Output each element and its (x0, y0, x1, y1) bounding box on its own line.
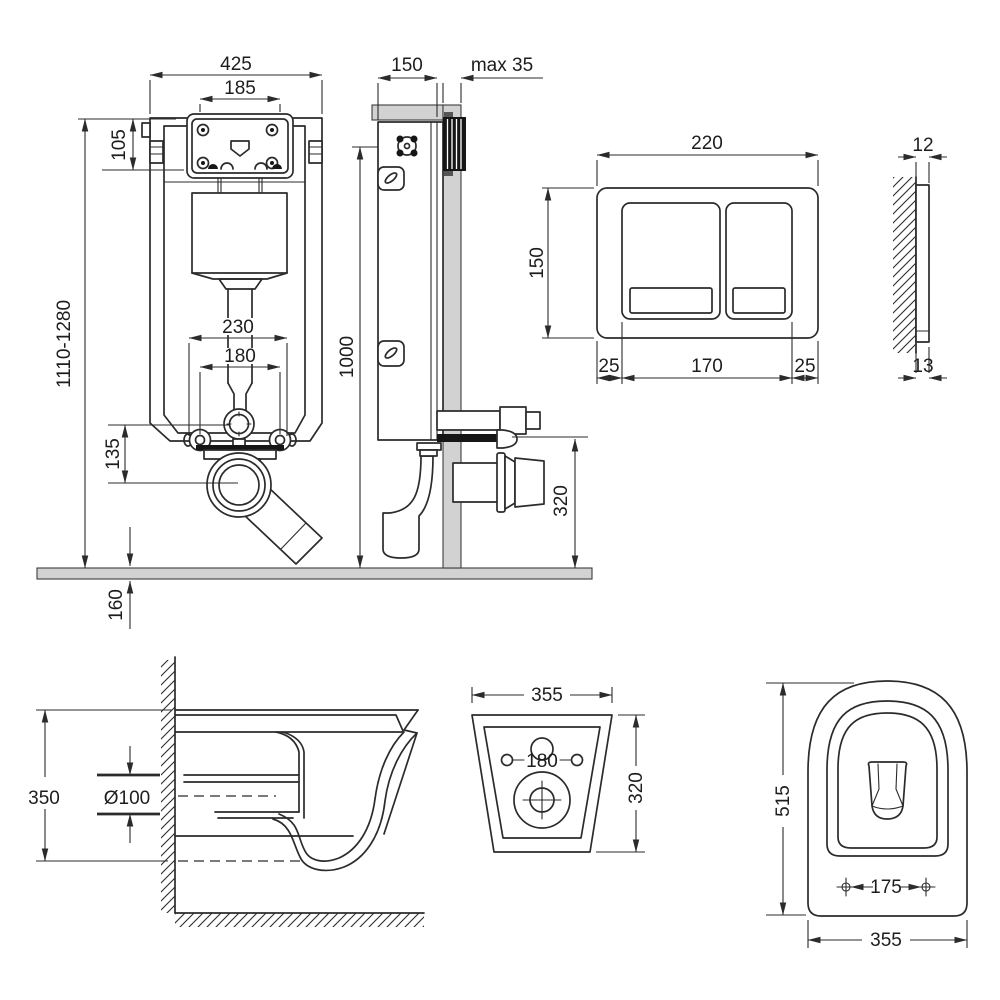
dim-plate-height: 150 (527, 188, 594, 338)
technical-drawing-page: 425 185 1110-1280 105 230 180 (0, 0, 1000, 1000)
access-box (187, 114, 293, 178)
dim-bowl-depth-label: 515 (773, 785, 794, 817)
dim-outlet-diameter-label: Ø100 (104, 788, 150, 809)
drain-socket (207, 453, 271, 517)
side-structure (372, 105, 544, 568)
dim-access-opening-width-label: 185 (224, 78, 256, 99)
wall-hatch-left (161, 660, 175, 913)
dim-frame-depth-label: 150 (391, 55, 423, 76)
floor-section (37, 568, 592, 579)
dim-plate-thickness-bottom-label: 13 (912, 356, 933, 377)
flush-plate (597, 188, 818, 338)
frame-right-bracket (309, 141, 322, 163)
dim-bowl-back-width: 355 (472, 685, 612, 706)
view-flush-plate-front: 220 150 25 170 25 (527, 133, 818, 384)
dim-install-height-label: 1110-1280 (54, 300, 75, 388)
hanger-slot-upper (378, 167, 404, 190)
dim-plate-thickness-top-label: 12 (912, 135, 933, 156)
water-supply-connection (437, 407, 540, 448)
dim-seat-fixing-spacing-label: 175 (870, 877, 902, 898)
dim-bracket-outer-width-label: 230 (222, 317, 254, 338)
dim-plate-thickness-top: 12 (898, 135, 947, 183)
frame-left-bracket (150, 141, 163, 163)
dim-wall-finish-max: max 35 (461, 55, 543, 78)
wall-hatch (893, 177, 916, 353)
dim-plate-buttons-width-label: 170 (691, 356, 723, 377)
dim-plate-width-label: 220 (691, 133, 723, 154)
dim-frame-height-label: 1000 (337, 336, 358, 378)
bowl-section-outline (175, 710, 418, 870)
drain-elbow-side (383, 443, 441, 558)
dim-access-opening-width: 185 (200, 78, 280, 112)
view-frame-side: 150 max 35 320 (372, 55, 588, 568)
frame-left-tab (142, 123, 150, 137)
dim-plate-height-label: 150 (527, 247, 548, 279)
floor-hatch (175, 913, 424, 927)
wc-installation-drawing: 425 185 1110-1280 105 230 180 (0, 0, 1000, 1000)
dim-bowl-back-width-label: 355 (531, 685, 563, 706)
dim-fixing-holes-spacing-label: 180 (526, 751, 558, 772)
dim-outlet-height-label: 320 (551, 485, 572, 517)
dim-outlet-diameter: Ø100 (97, 746, 160, 843)
dim-bowl-top-width: 355 (808, 920, 967, 951)
dim-wall-finish-max-label: max 35 (471, 55, 533, 76)
dim-bowl-height: 350 (28, 710, 172, 861)
dim-floor-buildup-label: 160 (106, 589, 127, 621)
dim-frame-width-label: 425 (220, 54, 252, 75)
dim-plate-margin-right-label: 25 (794, 356, 815, 377)
view-bowl-side: 350 Ø100 (28, 657, 424, 927)
inspection-shaft (443, 112, 466, 176)
hanger-slot-lower (378, 341, 404, 366)
dim-bowl-top-width-label: 355 (870, 930, 902, 951)
dim-plate-width: 220 (597, 133, 818, 186)
frame-structure (142, 114, 322, 564)
view-flush-plate-side: 12 13 (893, 135, 947, 378)
dim-access-opening-height-label: 105 (109, 129, 130, 161)
outlet-pipe-side (453, 453, 544, 512)
view-bowl-top: 515 175 355 (766, 681, 967, 951)
dim-anchor-spacing-label: 180 (224, 346, 256, 367)
top-rail-section (372, 105, 443, 120)
dim-plate-margin-left-label: 25 (598, 356, 619, 377)
dim-bowl-height-label: 350 (28, 788, 60, 809)
dim-valve-to-drain-label: 135 (103, 438, 124, 470)
plate-profile (916, 185, 929, 342)
dim-bowl-back-height-label: 320 (626, 772, 647, 804)
view-bowl-back: 355 180 320 (472, 685, 647, 852)
